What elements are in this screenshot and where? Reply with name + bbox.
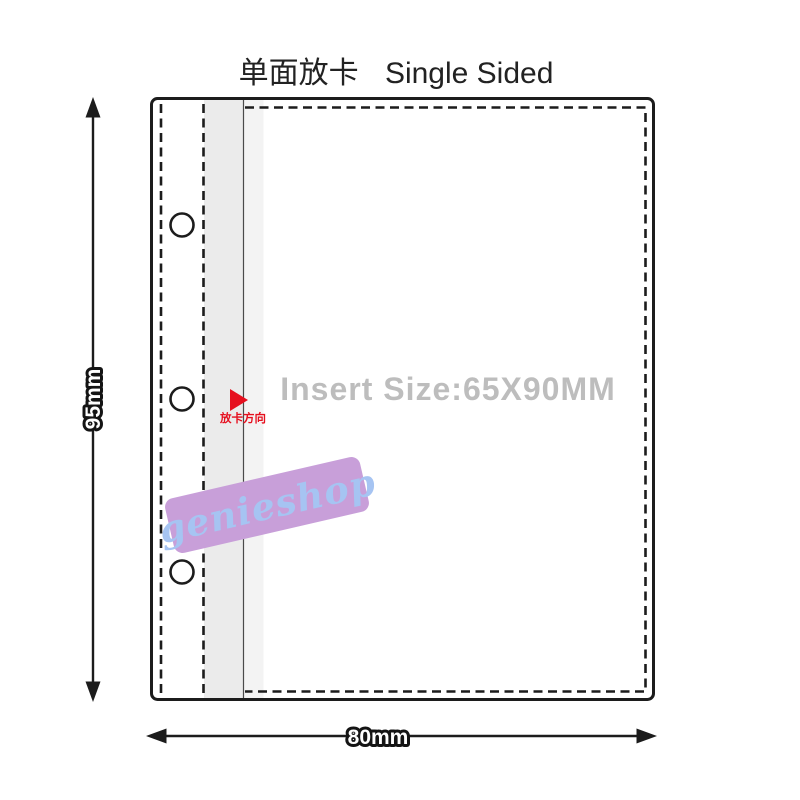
height-dimension-arrow: 95mm [82, 97, 105, 702]
width-dimension-arrow: 80mm [146, 726, 657, 749]
binder-hole-bottom [171, 561, 194, 584]
insert-size-label: Insert Size:65X90MM [280, 371, 616, 407]
binder-hole-middle [171, 388, 194, 411]
arrow-left-icon [146, 729, 167, 744]
product-dimension-diagram: 单面放卡 Single Sided Insert Size:65X90MM 放卡… [0, 0, 800, 800]
width-dimension-label: 80mm [348, 726, 409, 749]
insert-direction-label: 放卡方向 [219, 411, 266, 425]
arrow-right-icon [637, 729, 658, 744]
binder-hole-top [171, 214, 194, 237]
spine-strip-light [244, 100, 264, 698]
page-title-chinese: 单面放卡 [239, 57, 359, 90]
arrow-up-icon [86, 97, 101, 118]
height-dimension-label: 95mm [82, 369, 105, 430]
page-title: 单面放卡 Single Sided [239, 57, 554, 90]
page-title-english: Single Sided [385, 57, 553, 90]
arrow-down-icon [86, 682, 101, 703]
